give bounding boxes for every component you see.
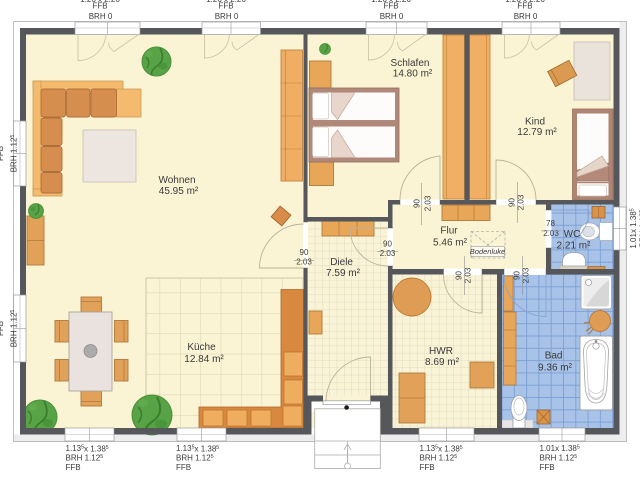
svg-text:FFB: FFB (420, 463, 435, 472)
svg-text:FFB: FFB (517, 2, 532, 11)
svg-text:90: 90 (300, 248, 309, 257)
svg-text:2.03: 2.03 (424, 195, 433, 211)
svg-text:Wohnen: Wohnen (158, 175, 195, 186)
svg-text:BRH 1.125: BRH 1.125 (176, 454, 214, 463)
svg-text:90: 90 (513, 271, 522, 280)
svg-text:90: 90 (508, 198, 517, 207)
svg-text:FFB: FFB (383, 2, 398, 11)
svg-text:1.01x 1.385: 1.01x 1.385 (540, 444, 580, 453)
svg-text:Diele: Diele (330, 257, 353, 268)
svg-text:90: 90 (413, 199, 422, 208)
svg-text:9.36 m²: 9.36 m² (538, 363, 573, 374)
svg-text:2.03: 2.03 (296, 258, 312, 267)
svg-text:FFB: FFB (66, 463, 81, 472)
svg-text:1.135x 1.385: 1.135x 1.385 (420, 444, 463, 453)
svg-text:FFB: FFB (176, 463, 191, 472)
svg-text:BRH 1.125: BRH 1.125 (66, 454, 104, 463)
svg-text:90: 90 (383, 240, 392, 249)
svg-text:BRH 1.125: BRH 1.125 (540, 454, 578, 463)
svg-text:2.21 m²: 2.21 m² (557, 241, 592, 252)
svg-text:2.03: 2.03 (380, 249, 396, 258)
svg-text:Flur: Flur (440, 226, 458, 237)
svg-text:FFB: FFB (92, 2, 107, 11)
svg-text:12.84 m²: 12.84 m² (184, 354, 224, 365)
svg-text:Kind: Kind (525, 116, 545, 127)
svg-text:2.03: 2.03 (464, 267, 473, 283)
svg-text:BRH 0: BRH 0 (380, 12, 404, 21)
svg-text:2.03: 2.03 (543, 229, 559, 238)
svg-text:Bodenluke: Bodenluke (470, 247, 505, 256)
svg-text:14.80 m²: 14.80 m² (393, 68, 433, 79)
svg-text:1.01x 1.385: 1.01x 1.385 (629, 208, 638, 248)
svg-text:Küche: Küche (187, 342, 216, 353)
svg-text:12.79 m²: 12.79 m² (517, 127, 557, 138)
svg-text:78: 78 (546, 219, 555, 228)
svg-text:FFB: FFB (218, 2, 233, 11)
svg-text:BRH 0: BRH 0 (514, 12, 538, 21)
svg-text:BRH 0: BRH 0 (89, 12, 113, 21)
svg-text:8.69 m²: 8.69 m² (425, 357, 460, 368)
svg-text:BRH 1.125: BRH 1.125 (420, 454, 458, 463)
svg-text:WC: WC (564, 229, 581, 240)
svg-text:2.03: 2.03 (517, 194, 526, 210)
svg-text:90: 90 (455, 271, 464, 280)
svg-text:45.95 m²: 45.95 m² (159, 186, 199, 197)
svg-text:Bad: Bad (545, 350, 563, 361)
svg-text:FFB: FFB (0, 321, 5, 336)
svg-text:BRH 0: BRH 0 (215, 12, 239, 21)
svg-text:HWR: HWR (429, 346, 453, 357)
svg-text:1.135x 1.385: 1.135x 1.385 (176, 444, 219, 453)
svg-text:BRH 1.125: BRH 1.125 (10, 135, 19, 173)
svg-text:FFB: FFB (540, 463, 555, 472)
svg-text:1.135x 1.385: 1.135x 1.385 (66, 444, 109, 453)
svg-text:5.46 m²: 5.46 m² (433, 238, 468, 249)
svg-text:2.03: 2.03 (522, 267, 531, 283)
svg-text:BRH 1.125: BRH 1.125 (10, 310, 19, 348)
svg-text:7.59 m²: 7.59 m² (326, 268, 361, 279)
svg-text:FFB: FFB (0, 146, 5, 161)
